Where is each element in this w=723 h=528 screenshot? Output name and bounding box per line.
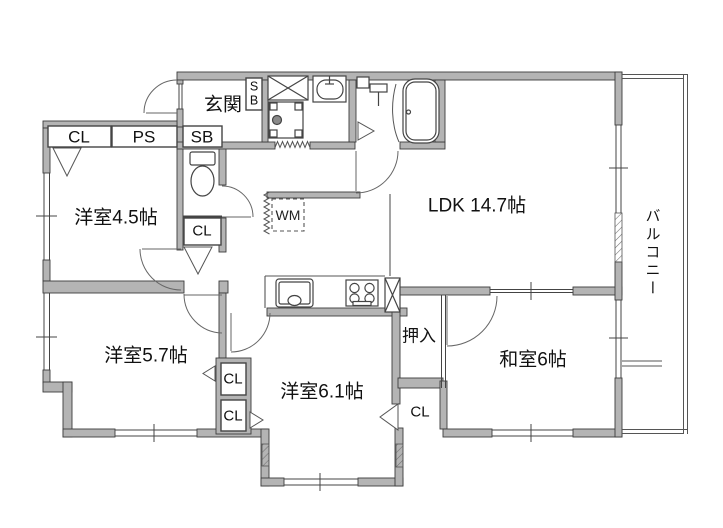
bathtub-icon [403, 79, 439, 143]
closet-label-1: CL [68, 129, 90, 146]
floor-plan-drawing [0, 0, 723, 528]
bath-mixer-icon [357, 77, 387, 106]
closet-door-triangle [380, 404, 398, 430]
duct-box-icon [268, 76, 308, 100]
washing-machine-pan-icon [269, 102, 303, 138]
washing-machine-label: WM [276, 208, 301, 222]
toilet-icon [190, 152, 215, 196]
room-label-ldk: LDK 14.7帖 [428, 197, 526, 216]
floor-plan: 玄関 S B CL PS SB 洋室4.5帖 CL WM LDK 14.7帖 バ… [0, 0, 723, 528]
room-label-japanese: 和室6帖 [499, 351, 567, 370]
oshiire-label: 押入 [402, 328, 436, 345]
closet-label-3: CL [223, 372, 242, 387]
kitchen-sink-icon [276, 279, 313, 307]
room-label-western-4-5: 洋室4.5帖 [74, 209, 157, 228]
balcony-label: バルコニー [645, 208, 660, 298]
shoe-box-label: SB [191, 129, 214, 146]
shoe-box-vertical-label: S B [250, 80, 258, 109]
room-label-western-5-7: 洋室5.7帖 [104, 347, 187, 366]
room-label-western-6-1: 洋室6.1帖 [280, 383, 363, 402]
pipe-space-label: PS [133, 129, 156, 146]
closet-door-triangle [184, 247, 212, 274]
pipe-shaft-icon [385, 278, 400, 312]
closet-label-2: CL [192, 224, 211, 239]
bath-floor-curve [393, 84, 399, 142]
stove-icon [346, 280, 378, 306]
closet-label-4: CL [223, 409, 242, 424]
closet-label-5: CL [410, 405, 429, 420]
closet-door-triangle [53, 148, 81, 176]
closet-door-triangle [203, 366, 215, 381]
bath-folding-door-triangle [358, 122, 374, 140]
closet-door-triangle [250, 412, 263, 428]
washbasin-icon [313, 76, 346, 102]
room-label-entrance: 玄関 [204, 96, 242, 115]
